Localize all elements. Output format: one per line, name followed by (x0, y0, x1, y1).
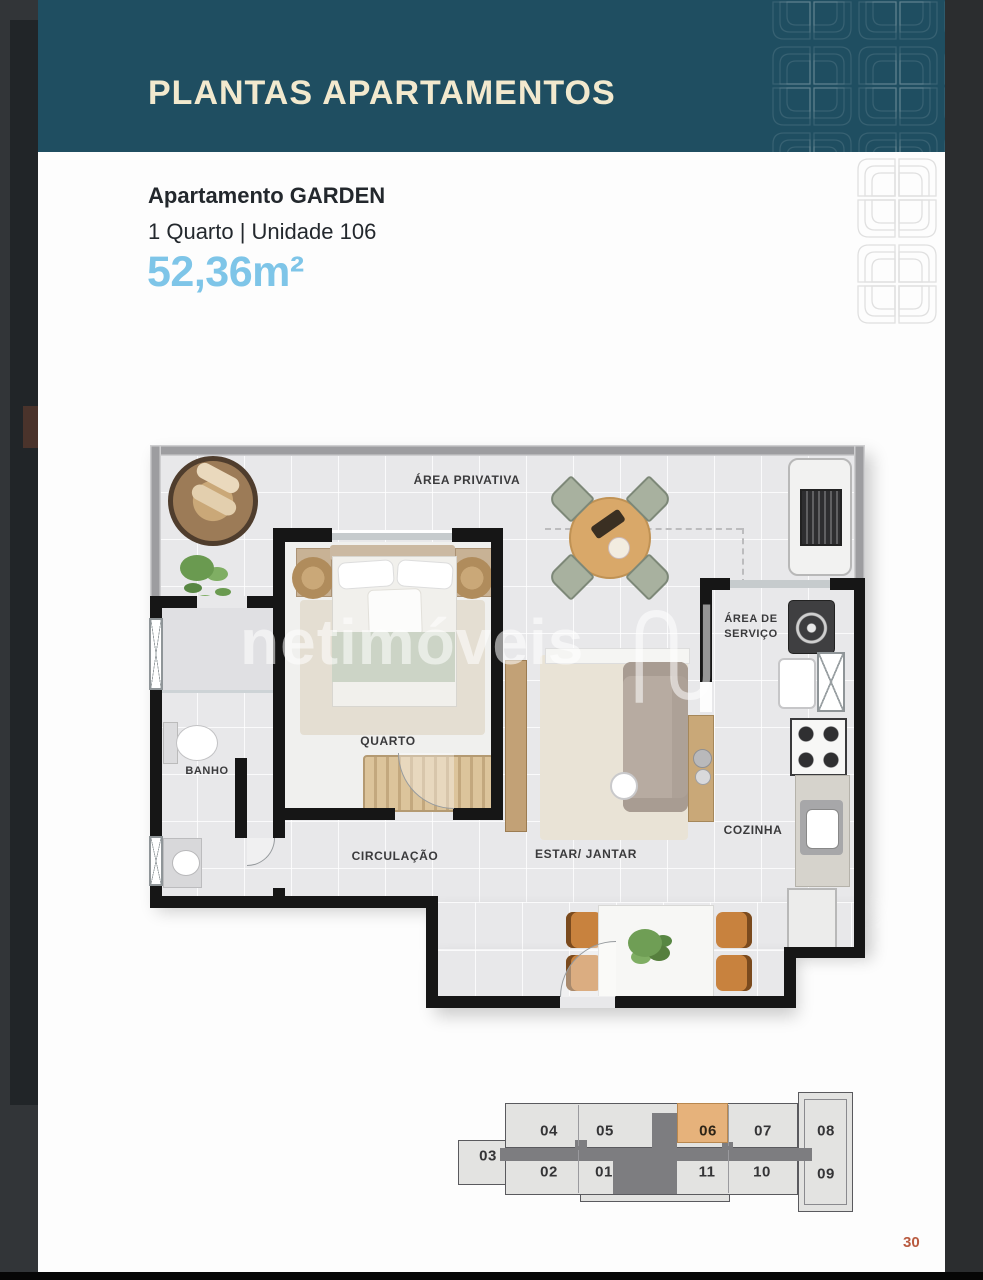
floorplan: ÁREA PRIVATIVA ÁREA DE SERVIÇO QUARTO BA… (150, 437, 865, 1010)
header-flower-pattern (770, 0, 945, 152)
dining-chair-4 (716, 955, 752, 991)
servico-window-band (730, 580, 830, 588)
keyplan-divider-3 (578, 1150, 579, 1193)
viewer-right-strip (945, 0, 983, 1280)
round-pouf-right (451, 557, 493, 599)
viewer-left-thumb (23, 406, 38, 448)
tv-console (505, 660, 527, 832)
label-area-servico-1: ÁREA DE (724, 613, 777, 625)
parapet-top (150, 445, 865, 456)
viewer-bottom-bar (0, 1272, 983, 1280)
keyplan-unit-06: 06 (699, 1123, 717, 1140)
label-estar-jantar: ESTAR/ JANTAR (535, 847, 637, 861)
round-pouf-left (292, 557, 334, 599)
bedroom-glass-door (332, 530, 452, 540)
keyplan-unit-04: 04 (540, 1123, 558, 1140)
page-number: 30 (903, 1234, 920, 1251)
keyplan-stub-left (575, 1140, 587, 1154)
shower-glass (162, 690, 273, 693)
dining-plant (628, 929, 662, 957)
keyplan-unit-01: 01 (595, 1164, 613, 1181)
fridge (787, 888, 837, 949)
bedroom-bottom-wall-b (453, 808, 503, 820)
keyplan-core-lower (613, 1148, 677, 1194)
page-header: PLANTAS APARTAMENTOS (38, 0, 945, 152)
keyplan-divider-2 (728, 1105, 729, 1146)
brochure-page: { "header": { "title": "PLANTAS APARTAME… (0, 0, 983, 1280)
bedroom-bottom-wall-a (285, 808, 395, 820)
keyplan-unit-11: 11 (699, 1164, 716, 1181)
bed-pillow-left (337, 559, 395, 590)
viewer-left-strip-inner (10, 20, 38, 1105)
bathroom-stub-wall (235, 758, 247, 838)
keyplan-unit-10: 10 (753, 1164, 771, 1181)
label-area-privativa: ÁREA PRIVATIVA (414, 473, 521, 487)
entry-door-gap (560, 996, 615, 1008)
label-cozinha: COZINHA (724, 823, 783, 837)
bedroom-left-wall (273, 542, 285, 838)
keyplan-divider-4 (728, 1150, 729, 1193)
label-circulacao: CIRCULAÇÃO (352, 849, 439, 863)
keyplan-unit-03: 03 (479, 1148, 497, 1165)
stove (790, 718, 847, 776)
wall-right-step (784, 947, 865, 958)
side-table (610, 772, 638, 800)
keyplan-bottom-bump (580, 1194, 730, 1202)
body-flower-pattern (855, 156, 945, 332)
laundry-tank (778, 658, 816, 709)
keyplan-divider-1 (578, 1105, 579, 1146)
wall-bottom-left (150, 896, 438, 908)
bedroom-left-stub (273, 888, 285, 896)
decor-ball-1 (693, 749, 712, 768)
page-title: PLANTAS APARTAMENTOS (148, 74, 616, 113)
dining-chair-3 (716, 912, 752, 948)
label-quarto: QUARTO (360, 734, 415, 748)
round-table-decor (608, 537, 630, 559)
bath-sink (172, 850, 200, 876)
keyplan: 04 05 06 07 08 03 02 01 11 10 09 (455, 1090, 955, 1215)
servico-top-wall-a (700, 578, 730, 590)
kitchen-sink-basin (806, 809, 839, 849)
toilet-bowl (176, 725, 218, 761)
decor-ball-2 (695, 769, 711, 785)
watermark-text: netimóveis (240, 605, 584, 679)
bed-pillow-right (396, 559, 454, 590)
servico-x-window (817, 652, 845, 712)
keyplan-unit-09: 09 (817, 1166, 835, 1183)
left-window-1 (149, 618, 163, 690)
dining-chair-1 (566, 912, 602, 948)
label-area-servico-2: SERVIÇO (724, 628, 778, 640)
parapet-right (854, 445, 865, 585)
washing-machine (788, 600, 835, 654)
left-window-2 (149, 836, 163, 886)
grill-grate (800, 489, 842, 546)
keyplan-unit-05: 05 (596, 1123, 614, 1140)
apartment-name: Apartamento GARDEN (148, 183, 385, 209)
bedroom-top-wall-a (273, 528, 332, 542)
terrace-plant (180, 555, 214, 581)
parapet-left (150, 445, 161, 600)
wall-notch-vertical (426, 896, 438, 1008)
watermark-logo-icon (632, 598, 712, 712)
label-banho: BANHO (185, 765, 228, 777)
keyplan-unit-07: 07 (754, 1123, 772, 1140)
apartment-area: 52,36m² (147, 248, 304, 297)
wall-right (854, 585, 865, 958)
apartment-details: 1 Quarto | Unidade 106 (148, 219, 376, 245)
keyplan-core-upper (652, 1113, 677, 1148)
terrace-dash-v (742, 528, 744, 585)
servico-top-wall-b (830, 578, 865, 590)
keyplan-unit-02: 02 (540, 1164, 558, 1181)
keyplan-unit-08: 08 (817, 1123, 835, 1140)
